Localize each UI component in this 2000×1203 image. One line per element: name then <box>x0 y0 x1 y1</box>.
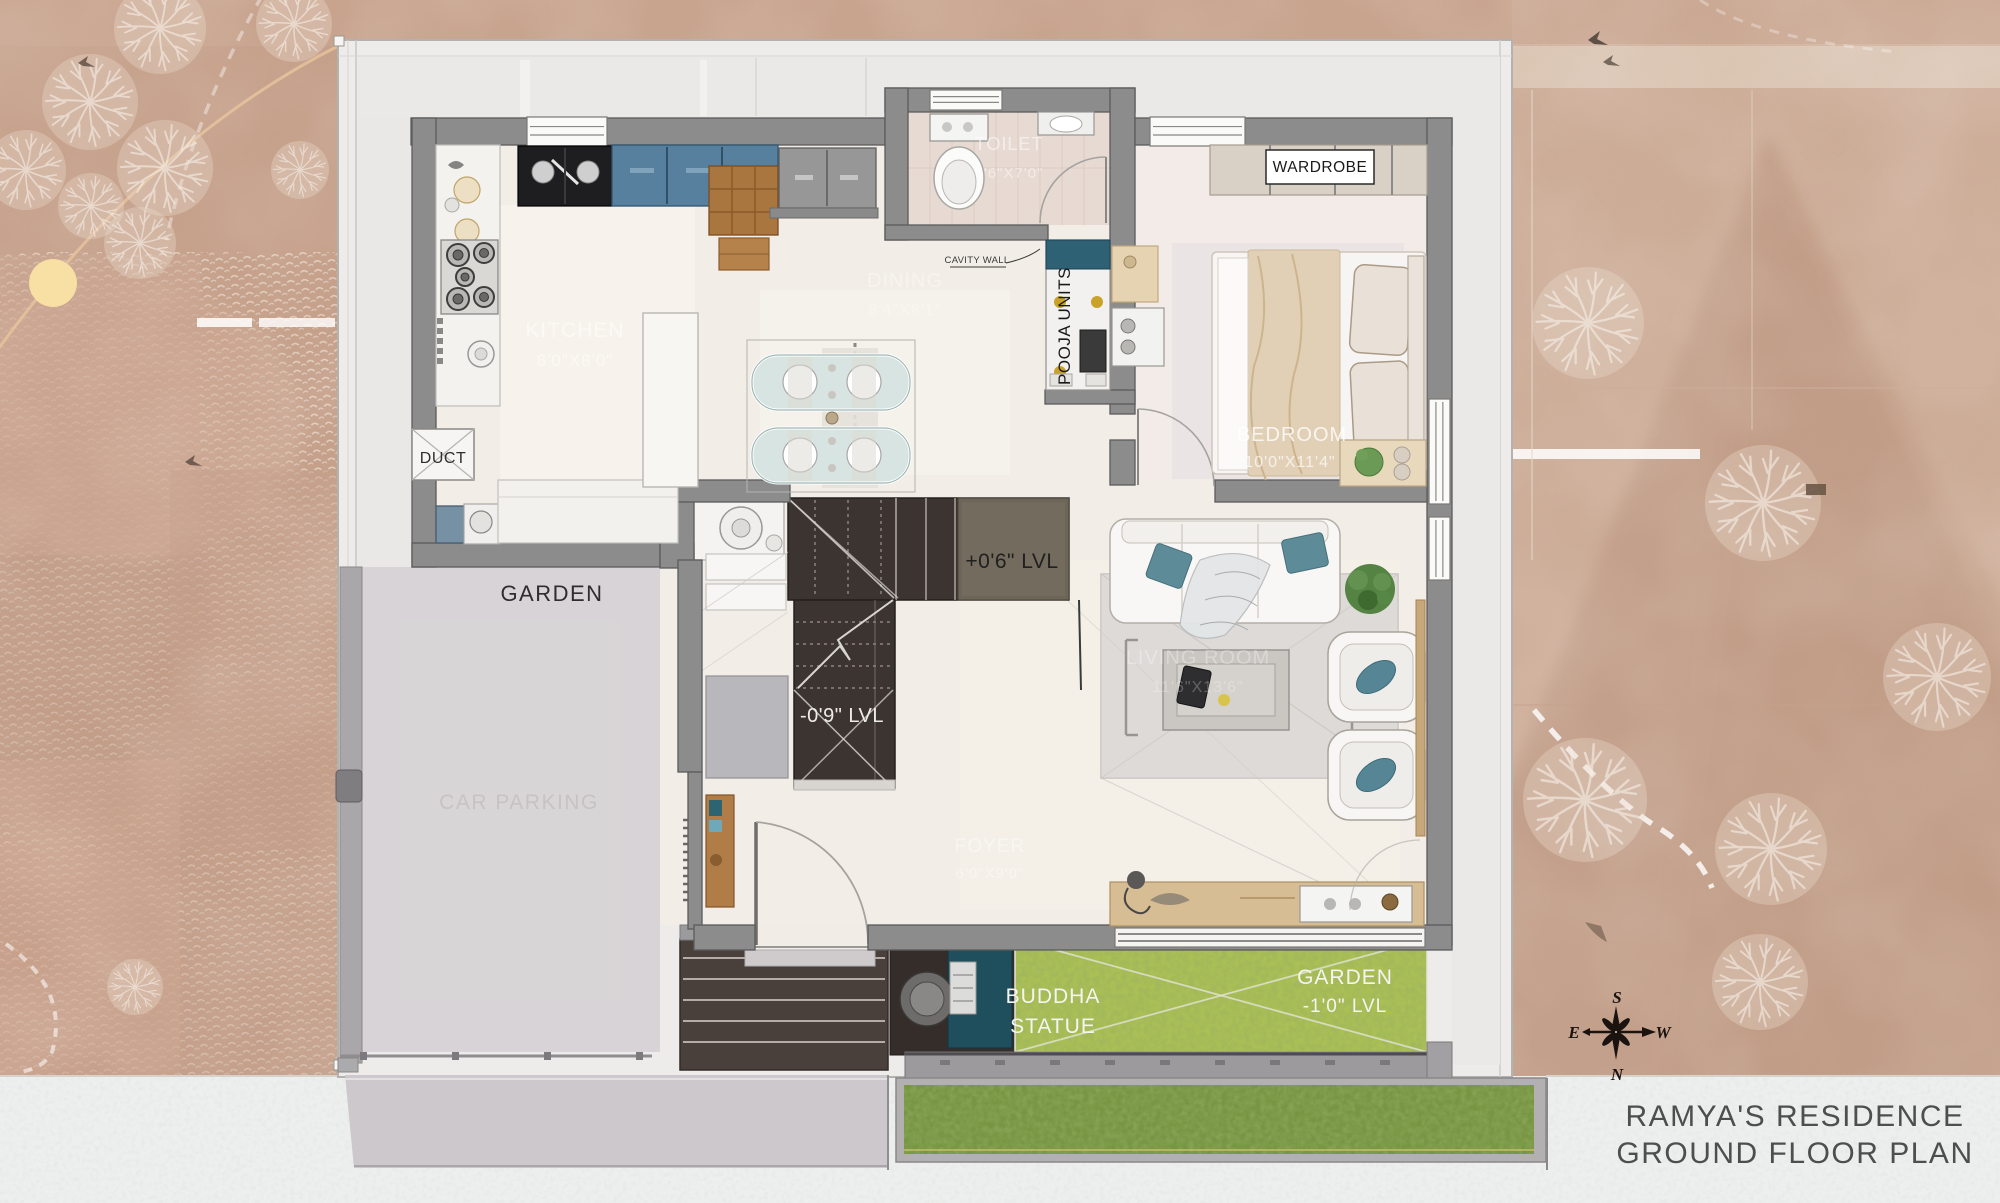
svg-text:N: N <box>1610 1065 1624 1084</box>
svg-text:+0'6" LVL: +0'6" LVL <box>965 550 1058 573</box>
svg-text:DUCT: DUCT <box>420 450 466 467</box>
svg-text:RAMYA'S RESIDENCE: RAMYA'S RESIDENCE <box>1625 1100 1964 1133</box>
svg-text:CAR PARKING: CAR PARKING <box>439 791 599 814</box>
svg-text:TOILET: TOILET <box>975 134 1044 154</box>
svg-text:8'4"X8'1": 8'4"X8'1" <box>869 302 942 319</box>
svg-text:STATUE: STATUE <box>1010 1015 1096 1038</box>
svg-text:CAVITY WALL: CAVITY WALL <box>945 255 1010 266</box>
svg-text:KITCHEN: KITCHEN <box>525 319 624 342</box>
svg-text:GROUND FLOOR PLAN: GROUND FLOOR PLAN <box>1616 1137 1973 1170</box>
svg-text:BEDROOM: BEDROOM <box>1237 424 1347 446</box>
svg-text:6'0"X9'0": 6'0"X9'0" <box>956 865 1025 882</box>
svg-text:S: S <box>1612 988 1621 1007</box>
svg-text:LIVING ROOM: LIVING ROOM <box>1126 647 1270 669</box>
svg-text:WARDROBE: WARDROBE <box>1273 159 1368 176</box>
svg-text:DINING: DINING <box>867 270 943 292</box>
svg-text:FOYER: FOYER <box>955 836 1025 857</box>
svg-text:6'6"X7'0": 6'6"X7'0" <box>975 165 1044 182</box>
svg-text:-1'0" LVL: -1'0" LVL <box>1303 996 1388 1017</box>
svg-text:10'0"X11'4": 10'0"X11'4" <box>1244 454 1335 471</box>
svg-text:E: E <box>1567 1023 1579 1042</box>
svg-text:BUDDHA: BUDDHA <box>1006 985 1101 1008</box>
svg-text:8'0"X8'0": 8'0"X8'0" <box>537 351 614 370</box>
svg-text:-0'9" LVL: -0'9" LVL <box>800 705 884 727</box>
svg-text:11'6"X13'6": 11'6"X13'6" <box>1152 679 1243 696</box>
svg-text:GARDEN: GARDEN <box>1297 966 1393 989</box>
svg-text:GARDEN: GARDEN <box>500 581 603 606</box>
svg-text:W: W <box>1655 1023 1672 1042</box>
svg-text:POOJA UNITS: POOJA UNITS <box>1055 267 1074 385</box>
